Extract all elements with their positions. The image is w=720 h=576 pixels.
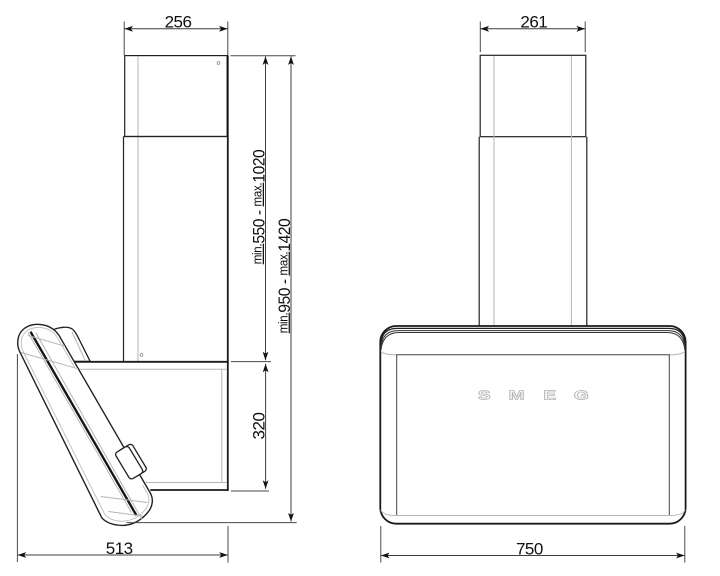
svg-text:256: 256	[165, 13, 192, 32]
svg-text:G: G	[574, 388, 589, 402]
svg-text:513: 513	[106, 539, 133, 558]
svg-text:S: S	[478, 388, 491, 402]
svg-text:750: 750	[516, 539, 543, 558]
svg-text:M: M	[509, 388, 525, 402]
svg-text:E: E	[543, 388, 556, 402]
svg-text:320: 320	[249, 413, 268, 440]
svg-text:261: 261	[520, 13, 547, 32]
